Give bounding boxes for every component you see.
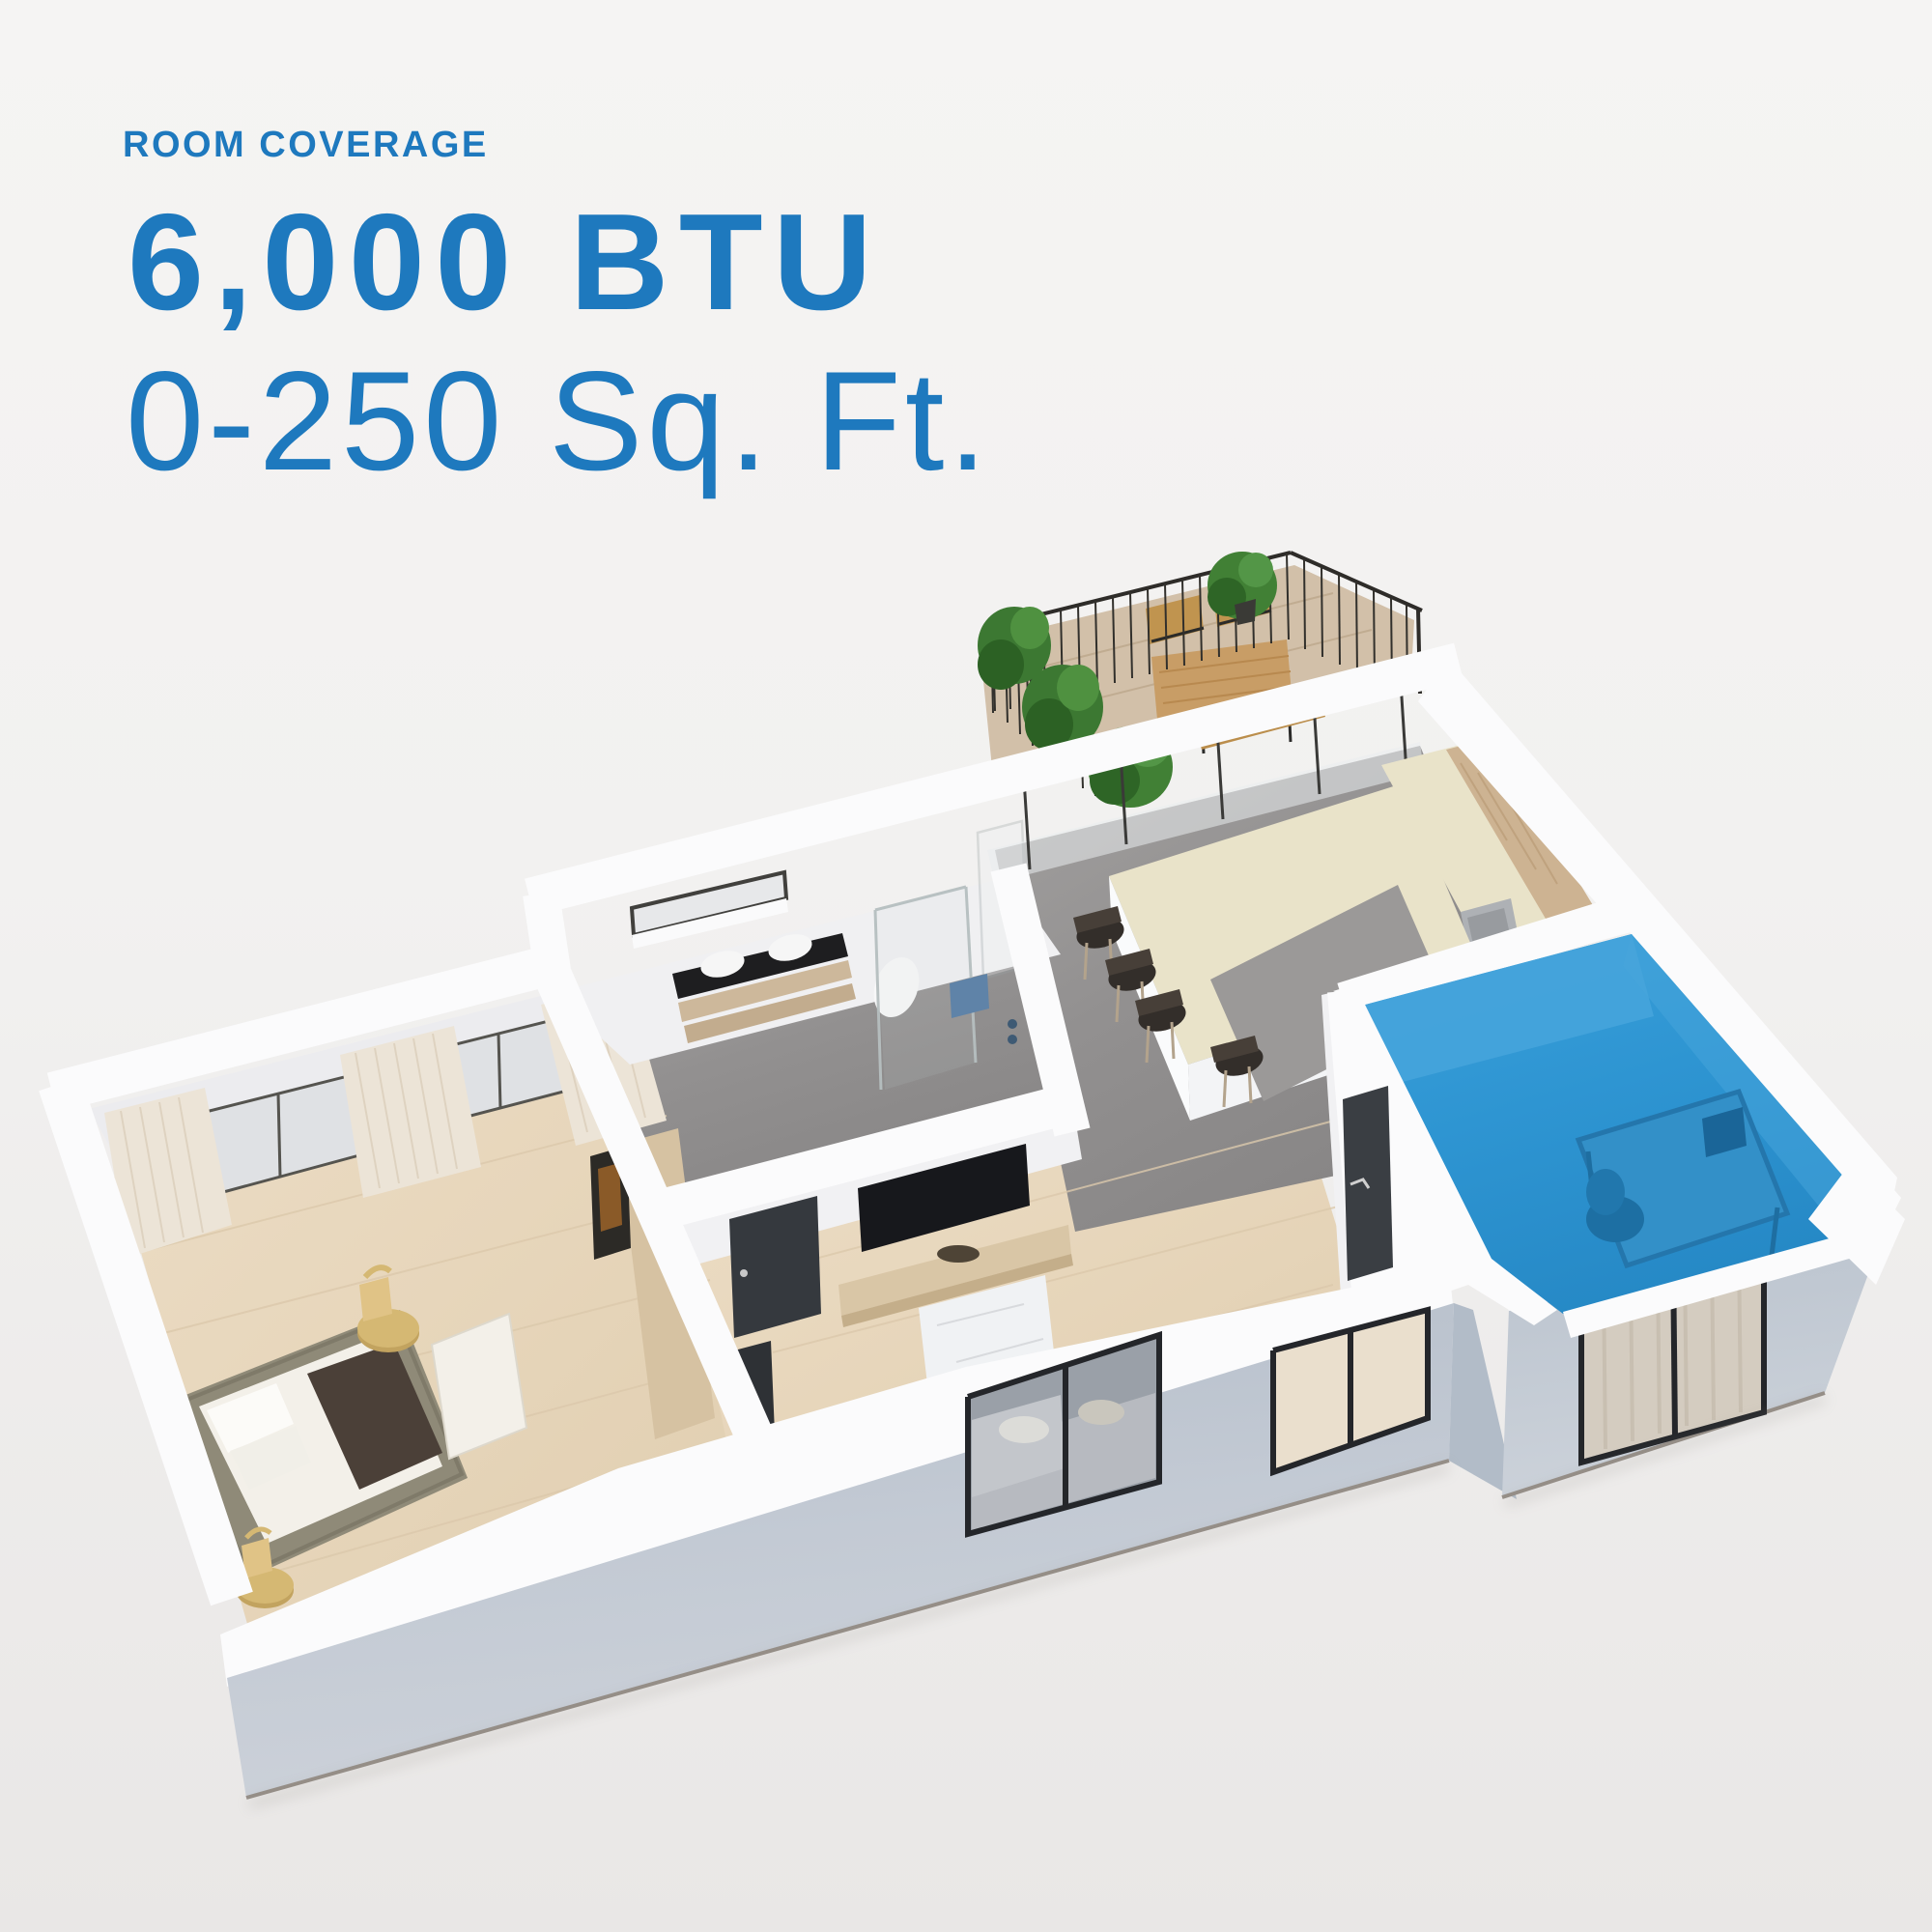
svg-text:ROOM COVERAGE: ROOM COVERAGE xyxy=(123,125,489,165)
svg-text:6,000 BTU: 6,000 BTU xyxy=(128,185,882,339)
svg-text:0-250 Sq. Ft.: 0-250 Sq. Ft. xyxy=(126,342,991,499)
